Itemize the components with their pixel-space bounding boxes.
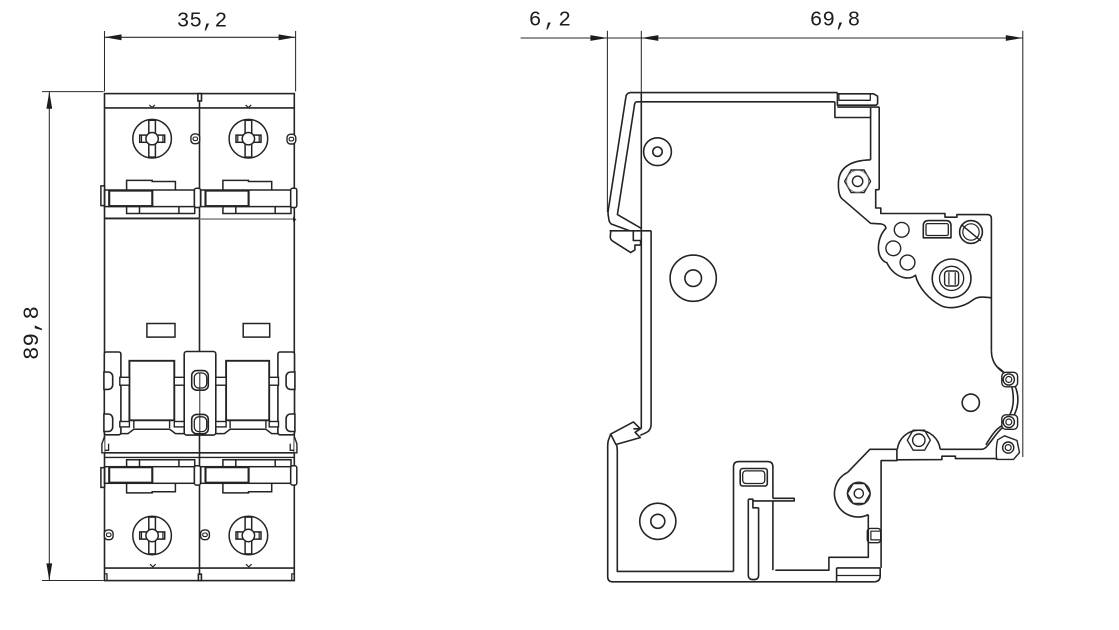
svg-text:69,8: 69,8 xyxy=(810,10,860,33)
svg-text:89,8: 89,8 xyxy=(19,306,45,360)
svg-text:35,2: 35,2 xyxy=(177,11,227,34)
svg-text:6,2: 6,2 xyxy=(529,10,573,33)
